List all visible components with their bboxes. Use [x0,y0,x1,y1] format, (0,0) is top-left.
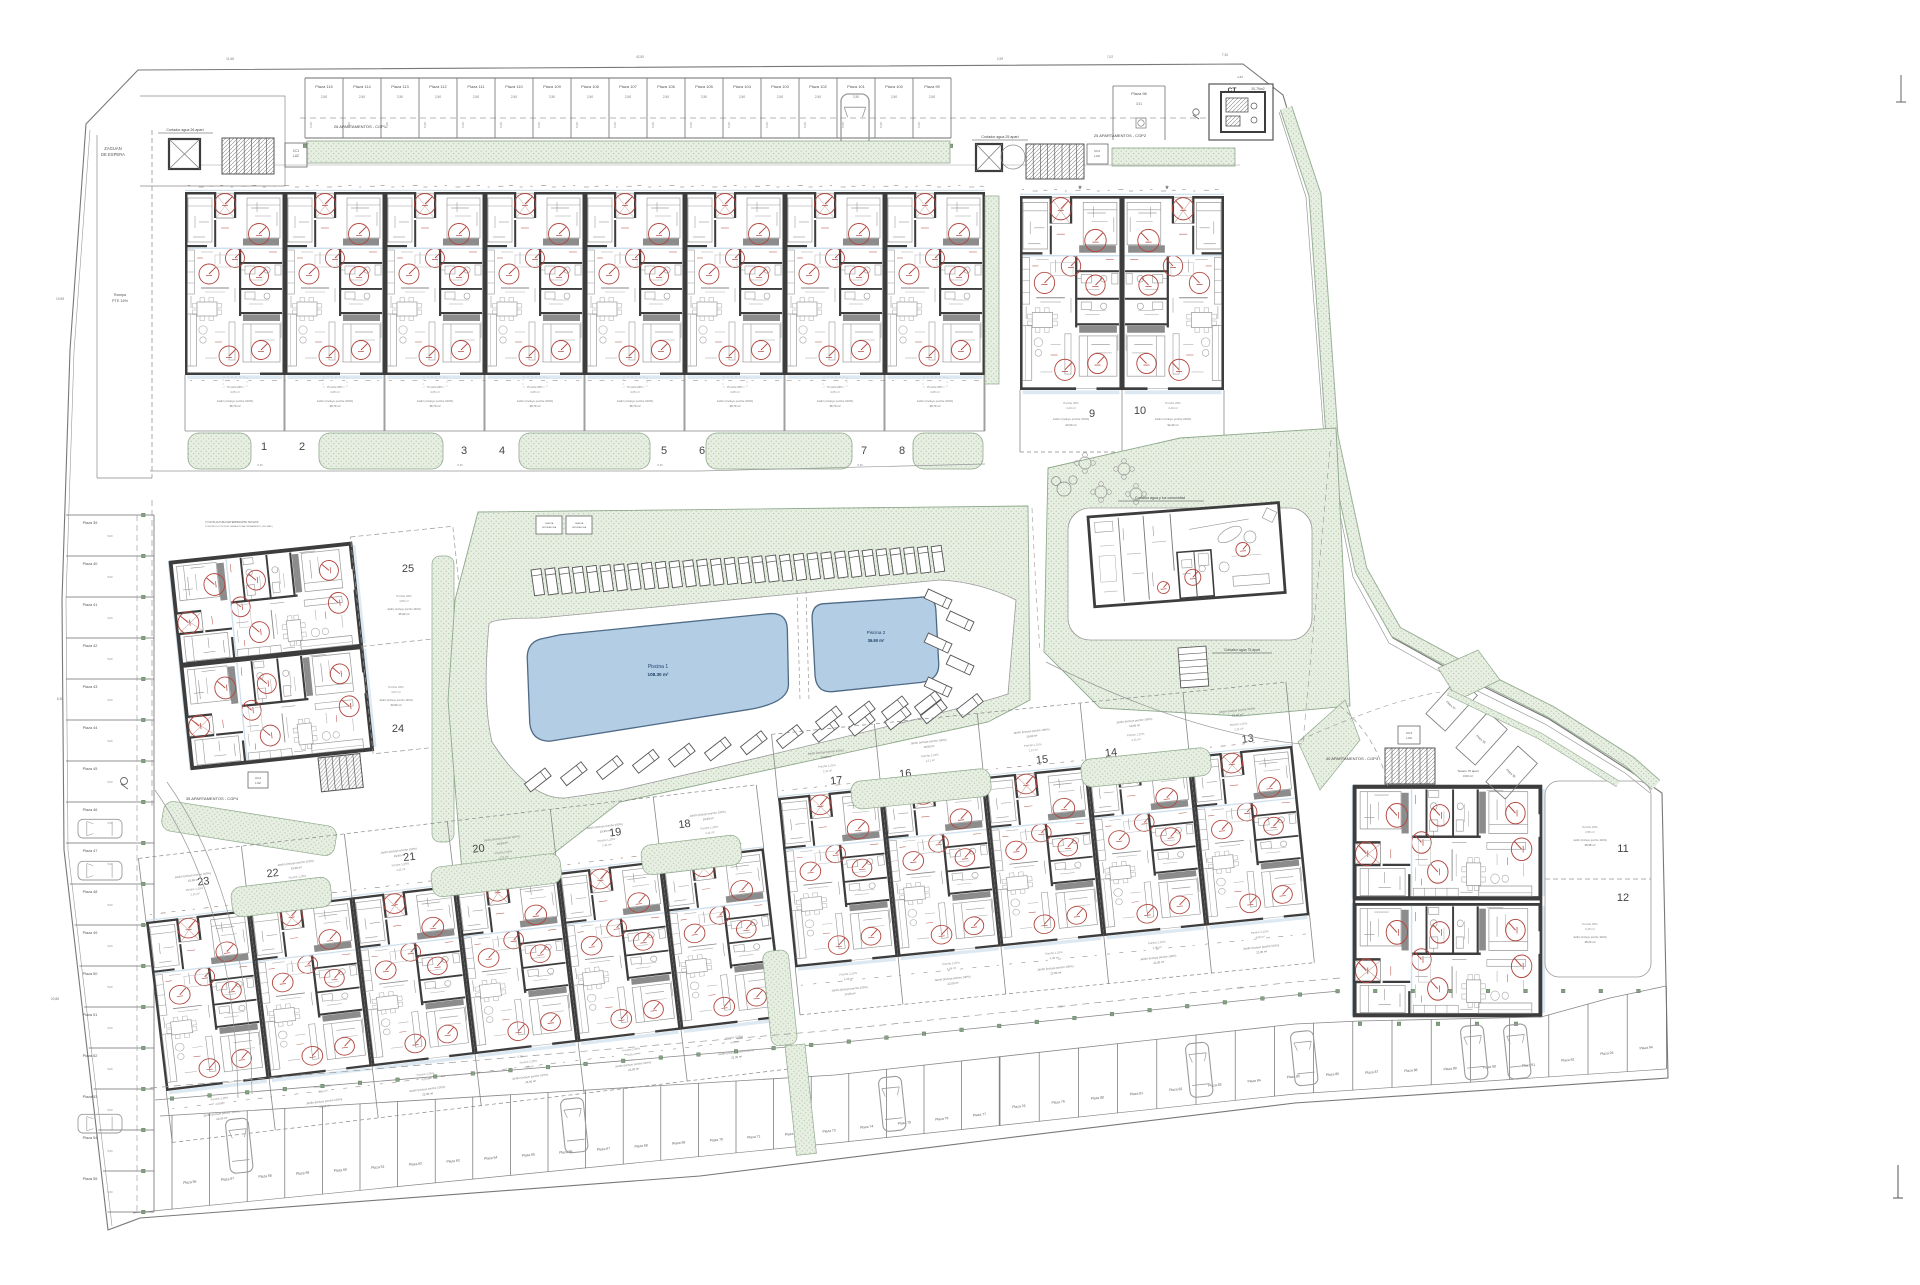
svg-text:CC2: CC2 [1094,149,1100,153]
svg-text:4,10 m²: 4,10 m² [1066,406,1076,410]
svg-text:LUZ: LUZ [293,154,299,158]
svg-text:25: 25 [402,563,414,575]
svg-text:1: 1 [261,441,267,453]
svg-text:Piscina 2: Piscina 2 [867,630,886,635]
svg-text:2,50: 2,50 [929,95,935,99]
svg-text:15: 15 [1035,754,1048,767]
svg-text:Plaza 53: Plaza 53 [83,1095,98,1099]
svg-text:2,50: 2,50 [587,95,593,99]
svg-text:Jardín (incluye porche 100%): Jardín (incluye porche 100%) [717,399,753,403]
svg-text:25 APARTAMENTOS - CGP2: 25 APARTAMENTOS - CGP2 [1094,133,1147,138]
svg-text:CT: CT [1228,87,1237,94]
svg-text:DEPURADORA: DEPURADORA [542,526,557,529]
svg-text:Plaza 115: Plaza 115 [315,84,333,89]
svg-text:2,50: 2,50 [815,95,821,99]
svg-text:4,05 m²: 4,05 m² [430,390,440,394]
svg-text:5,00: 5,00 [107,1026,113,1030]
svg-text:2,50: 2,50 [359,95,365,99]
svg-text:2,50: 2,50 [853,95,859,99]
svg-text:Porche 20%: Porche 20% [396,594,412,598]
svg-text:5,00: 5,00 [107,780,113,784]
svg-text:Plaza 52: Plaza 52 [83,1054,98,1058]
svg-text:4,83: 4,83 [1237,75,1243,79]
svg-text:Plaza 55: Plaza 55 [83,1177,98,1181]
svg-text:5,00: 5,00 [107,903,113,907]
svg-text:Plaza 106: Plaza 106 [657,84,676,89]
svg-text:Jardín (incluye porche 100%): Jardín (incluye porche 100%) [387,607,421,611]
svg-text:48,98 m²: 48,98 m² [1584,843,1595,847]
svg-text:2,99: 2,99 [997,57,1003,61]
svg-text:6,30: 6,30 [657,463,663,467]
svg-text:LUZ: LUZ [1094,154,1100,158]
svg-text:20,75m2: 20,75m2 [1251,87,1264,91]
svg-text:2,50: 2,50 [473,95,479,99]
svg-text:20,88: 20,88 [51,997,59,1001]
svg-text:Porche 20%: Porche 20% [1582,922,1598,926]
svg-text:6,30: 6,30 [857,463,863,467]
svg-text:108.30 m²: 108.30 m² [648,672,669,677]
svg-text:2,50: 2,50 [663,95,669,99]
svg-text:38,70 m²: 38,70 m² [629,404,640,408]
svg-text:6,38: 6,38 [1237,985,1243,989]
svg-text:Cortador agua 26 apart: Cortador agua 26 apart [166,128,203,132]
svg-text:Jardín (incluye porche 100%): Jardín (incluye porche 100%) [1573,838,1607,842]
svg-text:Jardín (incluye porche 100%): Jardín (incluye porche 100%) [417,399,453,403]
svg-text:Jardín (incluye porche 100%): Jardín (incluye porche 100%) [1155,417,1191,421]
svg-text:Jardín (incluye porche 100%): Jardín (incluye porche 100%) [217,399,253,403]
svg-text:Plaza 44: Plaza 44 [83,726,98,730]
svg-text:Plaza 43: Plaza 43 [83,685,98,689]
svg-text:10: 10 [1134,405,1146,417]
svg-text:Piscina 1: Piscina 1 [648,664,669,670]
svg-text:Plaza 108: Plaza 108 [581,84,600,89]
svg-text:Jardín (incluye porche 100%): Jardín (incluye porche 100%) [379,698,413,702]
svg-text:20: 20 [472,842,486,855]
svg-text:38,70 m²: 38,70 m² [329,404,340,408]
svg-text:Porche 20%: Porche 20% [1063,401,1079,405]
svg-text:5,00: 5,00 [107,616,113,620]
svg-text:92,40 m²: 92,40 m² [1167,423,1178,427]
svg-text:38,70 m²: 38,70 m² [529,404,540,408]
svg-text:7: 7 [861,445,867,457]
svg-text:5: 5 [661,445,667,457]
svg-text:Plaza 109: Plaza 109 [543,84,562,89]
svg-text:LUZ: LUZ [1406,736,1412,740]
svg-text:Plaza 107: Plaza 107 [619,84,638,89]
svg-text:6,30: 6,30 [457,463,463,467]
svg-text:6,38: 6,38 [737,1036,743,1040]
svg-text:5,00: 5,00 [107,944,113,948]
svg-text:6: 6 [699,445,705,457]
svg-text:2,50: 2,50 [397,95,403,99]
svg-text:Jardín (incluye porche 100%): Jardín (incluye porche 100%) [1053,417,1089,421]
svg-text:5,00: 5,00 [917,122,921,128]
svg-text:5,00: 5,00 [499,122,503,128]
svg-text:5,00: 5,00 [107,657,113,661]
svg-text:36.90 m²: 36.90 m² [868,638,885,643]
svg-text:Plaza 54: Plaza 54 [83,1136,98,1140]
svg-text:6,38: 6,38 [517,1054,523,1058]
svg-text:CONSTRUCCION NIVEL MATA ALTURA: CONSTRUCCION NIVEL MATA ALTURA CERRAMIEN… [205,525,273,528]
svg-text:CC3: CC3 [1406,731,1412,735]
svg-text:5,00: 5,00 [423,122,427,128]
svg-text:Plaza 47: Plaza 47 [83,849,98,853]
svg-text:Plaza 50: Plaza 50 [83,972,98,976]
svg-text:5,00: 5,00 [107,739,113,743]
svg-text:2,50: 2,50 [511,95,517,99]
svg-text:Jardín (incluye porche 100%): Jardín (incluye porche 100%) [817,399,853,403]
svg-text:2,50: 2,50 [701,95,707,99]
svg-text:CASETA: CASETA [575,522,584,525]
svg-text:5,00: 5,00 [727,122,731,128]
svg-text:5,00: 5,00 [803,122,807,128]
svg-text:4,05 m²: 4,05 m² [399,599,409,603]
svg-text:Jardín (incluye porche 100%): Jardín (incluye porche 100%) [617,399,653,403]
svg-text:Plaza 105: Plaza 105 [695,84,714,89]
svg-text:4,05 m²: 4,05 m² [730,390,740,394]
svg-text:Jardín (incluye porche 100%): Jardín (incluye porche 100%) [317,399,353,403]
svg-text:Plaza 39: Plaza 39 [83,521,98,525]
svg-text:PTE 16%: PTE 16% [112,299,129,303]
svg-text:4,05 m²: 4,05 m² [230,390,240,394]
svg-text:Plaza 51: Plaza 51 [83,1013,98,1017]
svg-text:Plaza 40: Plaza 40 [83,562,98,566]
svg-text:6,38: 6,38 [297,1073,303,1077]
svg-text:Plaza 41: Plaza 41 [83,603,98,607]
svg-text:42,50: 42,50 [636,55,644,59]
svg-text:38,70 m²: 38,70 m² [229,404,240,408]
svg-text:6,38: 6,38 [1057,1004,1063,1008]
svg-text:5,00: 5,00 [879,122,883,128]
svg-text:17: 17 [830,774,843,787]
svg-text:4: 4 [499,445,505,457]
svg-text:35 APARTAMENTOS - CGP4: 35 APARTAMENTOS - CGP4 [186,796,239,801]
svg-text:(*) NOTA ALTURA DETERMINANTE T: (*) NOTA ALTURA DETERMINANTE TECHOS [205,520,259,524]
svg-text:Rampa: Rampa [114,293,127,297]
svg-text:5,00: 5,00 [461,122,465,128]
svg-text:Jardín (incluye porche 100%): Jardín (incluye porche 100%) [1573,935,1607,939]
svg-text:48,20 m²: 48,20 m² [1584,940,1595,944]
svg-text:7,02: 7,02 [1107,55,1113,59]
svg-text:Contador agua 75 apart: Contador agua 75 apart [1224,648,1260,652]
svg-text:LUZ: LUZ [255,781,261,785]
svg-text:CASETA: CASETA [545,522,554,525]
svg-text:23: 23 [197,875,211,888]
svg-text:5,00: 5,00 [689,122,693,128]
svg-text:38,70 m²: 38,70 m² [929,404,940,408]
svg-text:Porche 20%: Porche 20% [1165,401,1181,405]
svg-text:4,05 m²: 4,05 m² [630,390,640,394]
svg-text:38,70 m²: 38,70 m² [729,404,740,408]
svg-text:2: 2 [299,441,305,453]
svg-text:5,00: 5,00 [107,1149,113,1153]
svg-text:DE ESPERA: DE ESPERA [101,152,125,157]
svg-text:5,00: 5,00 [107,1190,113,1194]
svg-text:22,00 m²: 22,00 m² [1065,423,1076,427]
svg-text:6,15 m²: 6,15 m² [1585,927,1595,931]
svg-text:Plaza 45: Plaza 45 [83,767,98,771]
svg-text:Plaza 114: Plaza 114 [353,84,371,89]
svg-text:4,05 m²: 4,05 m² [330,390,340,394]
svg-text:7,30: 7,30 [1222,53,1228,57]
svg-text:5,00: 5,00 [107,534,113,538]
svg-text:3,51: 3,51 [1136,102,1142,106]
svg-text:5,00: 5,00 [107,1067,113,1071]
svg-text:Plaza 112: Plaza 112 [429,84,447,89]
svg-text:DEPURADORA: DEPURADORA [572,526,587,529]
svg-text:4,05 m²: 4,05 m² [930,390,940,394]
svg-text:2,50: 2,50 [891,95,897,99]
svg-text:Plaza 104: Plaza 104 [733,84,752,89]
svg-text:Porche 20%: Porche 20% [388,685,404,689]
svg-text:26 APARTAMENTOS - CGP1: 26 APARTAMENTOS - CGP1 [334,124,387,129]
svg-text:2,50: 2,50 [739,95,745,99]
svg-text:5,00: 5,00 [107,1108,113,1112]
svg-text:3: 3 [461,445,467,457]
svg-text:38,70 m²: 38,70 m² [429,404,440,408]
svg-text:ZAGUAN: ZAGUAN [104,146,121,151]
svg-text:CC4: CC4 [255,776,261,780]
svg-text:5,00: 5,00 [651,122,655,128]
svg-text:Plaza 49: Plaza 49 [83,931,98,935]
svg-text:Plaza 98: Plaza 98 [1131,91,1147,96]
svg-text:Plaza 46: Plaza 46 [83,808,98,812]
svg-text:11: 11 [1617,843,1628,855]
svg-text:18: 18 [678,818,692,831]
svg-text:5,00: 5,00 [107,575,113,579]
svg-text:Jardín (incluye porche 100%): Jardín (incluye porche 100%) [517,399,553,403]
svg-text:Plaza 42: Plaza 42 [83,644,98,648]
svg-text:19: 19 [609,826,623,839]
svg-text:Porche 20%: Porche 20% [1582,825,1598,829]
svg-text:3,00 m²: 3,00 m² [1463,774,1473,778]
svg-text:5,00: 5,00 [309,122,313,128]
svg-text:5,00: 5,00 [107,985,113,989]
svg-text:4,05 m²: 4,05 m² [830,390,840,394]
svg-text:21: 21 [403,851,417,864]
svg-text:Plaza 101: Plaza 101 [847,84,866,89]
svg-text:Plaza 113: Plaza 113 [391,84,409,89]
svg-text:Plaza 48: Plaza 48 [83,890,98,894]
svg-text:5,00: 5,00 [765,122,769,128]
svg-text:5,00: 5,00 [537,122,541,128]
svg-text:38,70 m²: 38,70 m² [829,404,840,408]
svg-text:5,00: 5,00 [575,122,579,128]
svg-text:Cortador agua 25 apart: Cortador agua 25 apart [981,135,1018,139]
svg-text:8: 8 [899,445,905,457]
svg-text:2,50: 2,50 [321,95,327,99]
svg-text:2,50: 2,50 [435,95,441,99]
svg-text:4,07 m²: 4,07 m² [391,690,401,694]
svg-text:Plaza 99: Plaza 99 [924,84,940,89]
svg-text:Texaco 75 apart: Texaco 75 apart [1457,769,1479,773]
svg-text:4,56 m²: 4,56 m² [1585,830,1595,834]
svg-text:Jardín (incluye porche 100%): Jardín (incluye porche 100%) [917,399,953,403]
svg-text:24: 24 [392,723,404,735]
svg-text:30,90 m²: 30,90 m² [390,703,401,707]
svg-text:CC1: CC1 [293,149,300,153]
svg-text:2,50: 2,50 [625,95,631,99]
svg-text:5,00: 5,00 [613,122,617,128]
svg-text:Plaza 110: Plaza 110 [505,84,523,89]
svg-text:6,30: 6,30 [257,463,263,467]
svg-text:4,05 m²: 4,05 m² [530,390,540,394]
svg-text:Plaza 102: Plaza 102 [809,84,828,89]
svg-text:Plaza 111: Plaza 111 [467,84,485,89]
svg-text:Plaza 103: Plaza 103 [771,84,790,89]
svg-text:*: * [1078,184,1082,194]
svg-text:4,10 m²: 4,10 m² [1168,406,1178,410]
svg-text:22: 22 [266,867,280,880]
svg-text:Plaza 100: Plaza 100 [885,84,904,89]
svg-text:*: * [1165,184,1169,194]
svg-text:2,50: 2,50 [777,95,783,99]
svg-text:5,00: 5,00 [107,698,113,702]
svg-text:36,90 m²: 36,90 m² [398,612,409,616]
svg-text:6,38: 6,38 [57,697,63,701]
svg-text:40 APARTAMENTOS - CGP3: 40 APARTAMENTOS - CGP3 [1326,756,1379,761]
svg-text:Cortador agua y luz comunidad: Cortador agua y luz comunidad [1135,496,1185,500]
svg-text:9: 9 [1089,408,1095,420]
svg-text:19,98: 19,98 [56,297,64,301]
svg-text:12: 12 [1617,892,1629,904]
svg-text:2,50: 2,50 [549,95,555,99]
svg-text:11,68: 11,68 [226,57,234,61]
